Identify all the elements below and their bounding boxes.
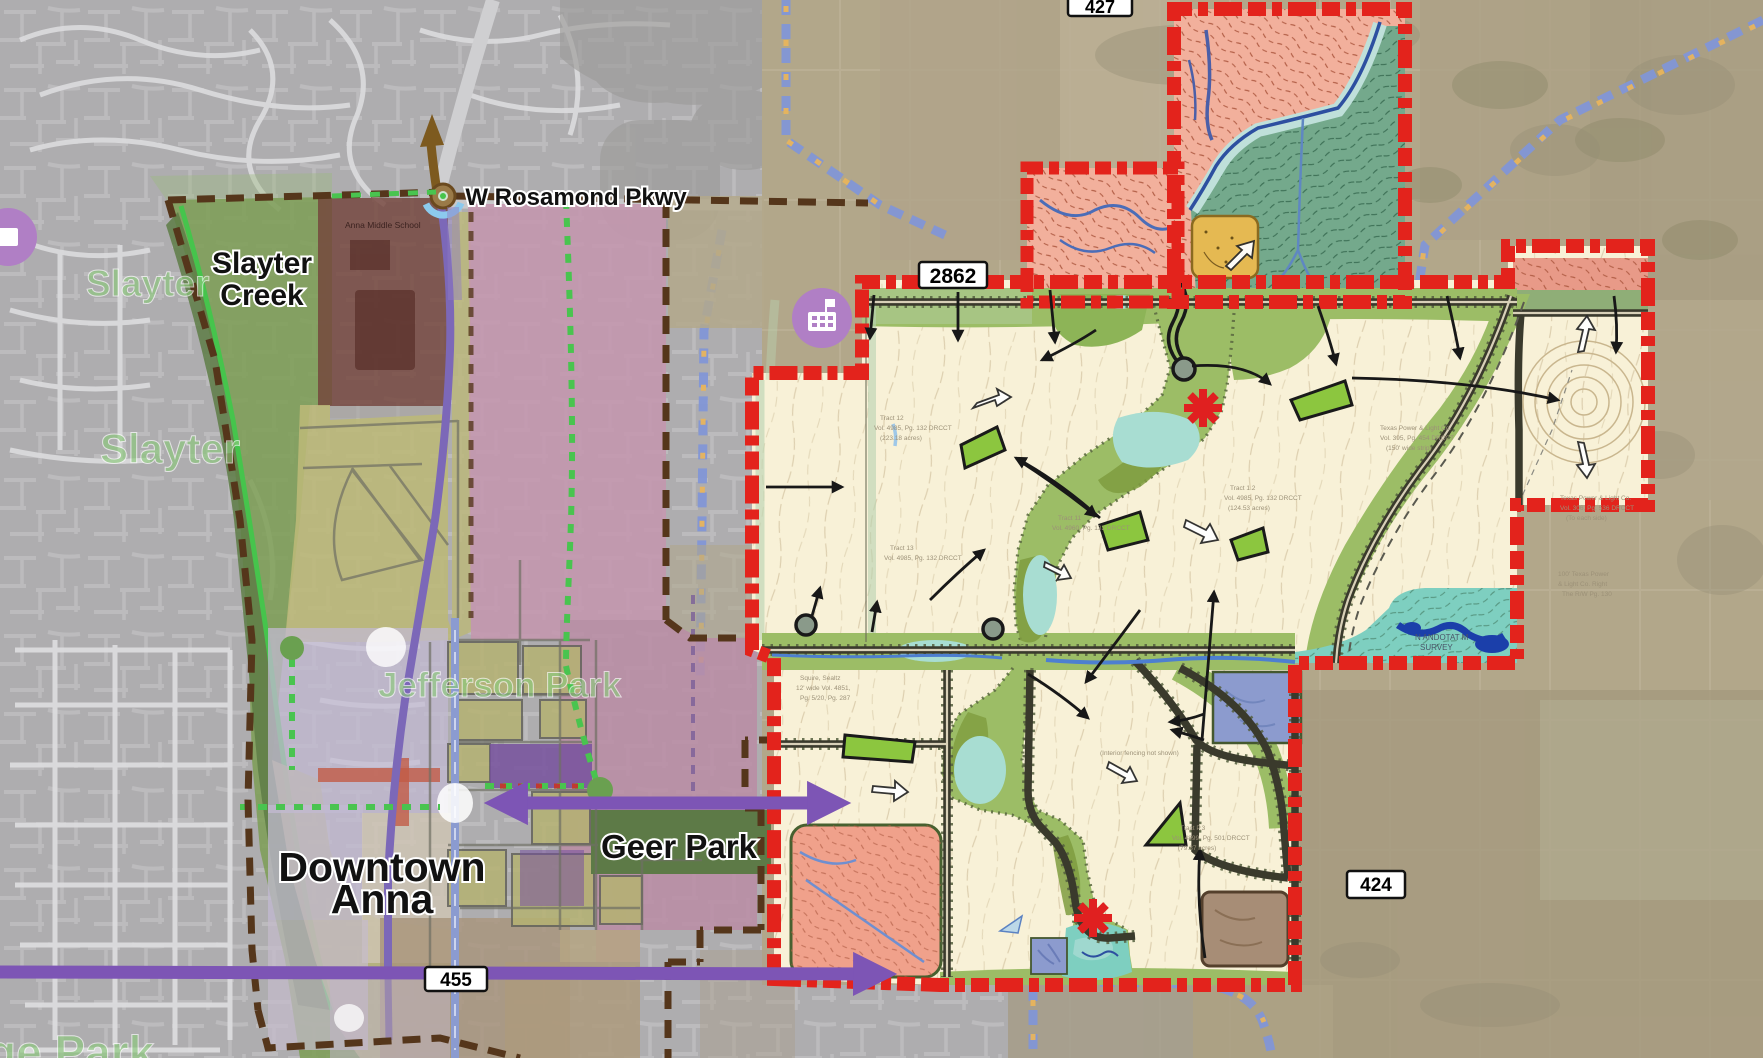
svg-text:Slayter: Slayter xyxy=(100,425,240,472)
svg-text:Vol. 4960, Pg. 132 DRCCT: Vol. 4960, Pg. 132 DRCCT xyxy=(1052,525,1130,532)
svg-text:& Light Co. Right: & Light Co. Right xyxy=(1558,581,1607,588)
svg-text:Slayter: Slayter xyxy=(212,247,312,280)
svg-text:Texas Power & Light Co.: Texas Power & Light Co. xyxy=(1560,495,1631,502)
svg-text:455: 455 xyxy=(440,970,472,991)
svg-text:Tract 1.2: Tract 1.2 xyxy=(1230,485,1256,492)
svg-text:Vol. 4985, Pg. 132 DRCCT: Vol. 4985, Pg. 132 DRCCT xyxy=(1224,495,1302,502)
svg-text:Pg. 5/20, Pg. 287: Pg. 5/20, Pg. 287 xyxy=(800,695,851,702)
svg-text:(150' wide strip): (150' wide strip) xyxy=(1386,445,1432,452)
svg-text:(Interior fencing not shown): (Interior fencing not shown) xyxy=(1100,750,1179,757)
svg-text:Squire, Sealtz: Squire, Sealtz xyxy=(800,675,840,682)
svg-text:2862: 2862 xyxy=(930,265,977,288)
svg-text:Tract 13: Tract 13 xyxy=(890,545,914,552)
svg-text:The R/W Pg. 130: The R/W Pg. 130 xyxy=(1562,591,1612,598)
svg-text:100' Texas Power: 100' Texas Power xyxy=(1558,571,1610,578)
svg-text:(124.53 acres): (124.53 acres) xyxy=(1228,505,1270,512)
svg-text:Creek: Creek xyxy=(220,279,304,312)
svg-text:N ANDOTAT M: N ANDOTAT M xyxy=(1415,633,1469,642)
svg-text:(79.87 acres): (79.87 acres) xyxy=(1178,845,1216,852)
svg-text:Vol. 306, Pg. 536 DRCCT: Vol. 306, Pg. 536 DRCCT xyxy=(1560,505,1634,512)
svg-text:12' wide Vol. 4851,: 12' wide Vol. 4851, xyxy=(796,685,851,692)
svg-text:Vol. 4899, Pg. 501 DRCCT: Vol. 4899, Pg. 501 DRCCT xyxy=(1172,835,1250,842)
svg-text:(To each side): (To each side) xyxy=(1566,515,1607,522)
svg-text:427: 427 xyxy=(1085,0,1115,17)
svg-text:Vol. 4985, Pg. 132 DRCCT: Vol. 4985, Pg. 132 DRCCT xyxy=(874,425,952,432)
svg-text:Slayter: Slayter xyxy=(86,263,209,304)
svg-text:Tract 11: Tract 11 xyxy=(1058,515,1082,522)
svg-text:Anna Middle School: Anna Middle School xyxy=(345,220,421,230)
svg-text:SURVEY: SURVEY xyxy=(1420,643,1453,652)
svg-text:W Rosamond Pkwy: W Rosamond Pkwy xyxy=(465,184,687,211)
svg-text:(223.18 acres): (223.18 acres) xyxy=(880,435,922,442)
svg-text:Jefferson Park: Jefferson Park xyxy=(378,666,622,705)
svg-text:Vol. 395, Pg. 454 DRCCT: Vol. 395, Pg. 454 DRCCT xyxy=(1380,435,1454,442)
svg-text:Texas Power & Light Co.: Texas Power & Light Co. xyxy=(1380,425,1451,432)
svg-text:Tract 12: Tract 12 xyxy=(880,415,904,422)
svg-text:ge Park: ge Park xyxy=(0,1026,155,1058)
svg-text:Anna: Anna xyxy=(331,876,435,922)
svg-text:Tract P.3: Tract P.3 xyxy=(1180,825,1206,832)
svg-text:Vol. 4985, Pg. 132 DRCCT: Vol. 4985, Pg. 132 DRCCT xyxy=(884,555,962,562)
svg-text:Geer Park: Geer Park xyxy=(601,828,758,865)
svg-text:424: 424 xyxy=(1360,875,1392,896)
